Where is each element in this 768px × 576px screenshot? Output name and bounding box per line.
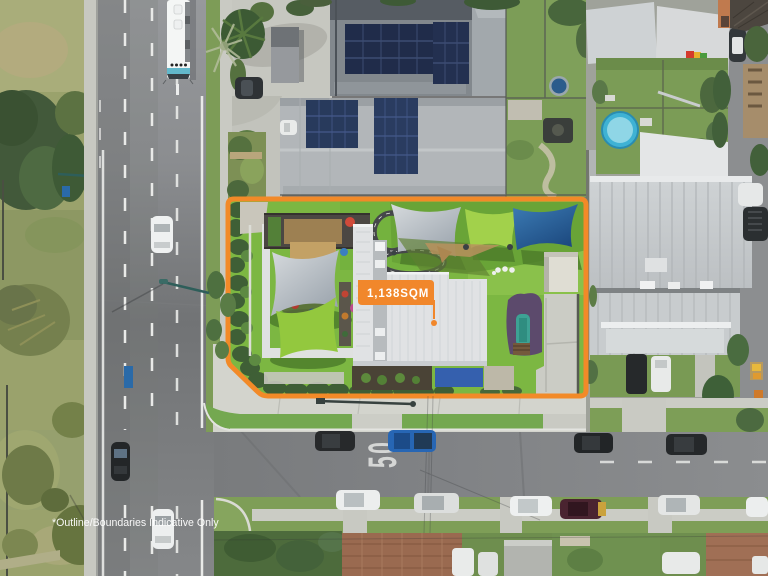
svg-text:1,138SQM: 1,138SQM xyxy=(367,288,429,300)
svg-text:*Outline/Boundaries Indicative: *Outline/Boundaries Indicative Only xyxy=(52,517,219,529)
